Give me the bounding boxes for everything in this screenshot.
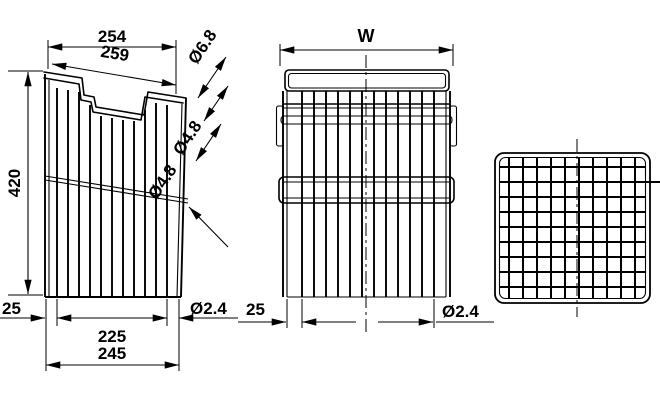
dim-259-label: 259 (99, 42, 130, 65)
wire-basket-drawing: 254 259 420 Ø6.8 Ø4.8 Ø4.8 25 Ø2.4 225 2… (0, 0, 660, 400)
front-vertical-wires (302, 91, 434, 297)
front-dim-25-label: 25 (246, 300, 265, 319)
dia-4-8-a-label: Ø4.8 (169, 117, 205, 158)
rim-outline-outer (44, 72, 186, 115)
leader-line (189, 207, 228, 247)
front-dia-2-4-label: Ø2.4 (442, 302, 479, 321)
dia-2-4-label: Ø2.4 (190, 299, 227, 318)
front-view: W 25 Ø2.4 (238, 26, 494, 332)
dia-line-4-8-a (204, 86, 228, 121)
top-view (495, 139, 660, 317)
mesh-grid (499, 157, 660, 299)
technical-drawing-page: 254 259 420 Ø6.8 Ø4.8 Ø4.8 25 Ø2.4 225 2… (0, 0, 660, 400)
top-rim-band-inner (289, 74, 446, 89)
dia-4-8-b-label: Ø4.8 (144, 161, 180, 202)
dim-420-label: 420 (5, 169, 24, 197)
rim-outline-inner (44, 78, 183, 120)
dim-245-label: 245 (98, 344, 126, 363)
dia-6-8-label: Ø6.8 (184, 26, 220, 67)
side-view: 254 259 420 Ø6.8 Ø4.8 Ø4.8 25 Ø2.4 225 2… (0, 26, 238, 371)
right-hook-tab (450, 106, 457, 146)
dim-25-label: 25 (2, 299, 21, 318)
dim-w-label: W (358, 26, 375, 46)
left-hook-tab (277, 106, 284, 146)
